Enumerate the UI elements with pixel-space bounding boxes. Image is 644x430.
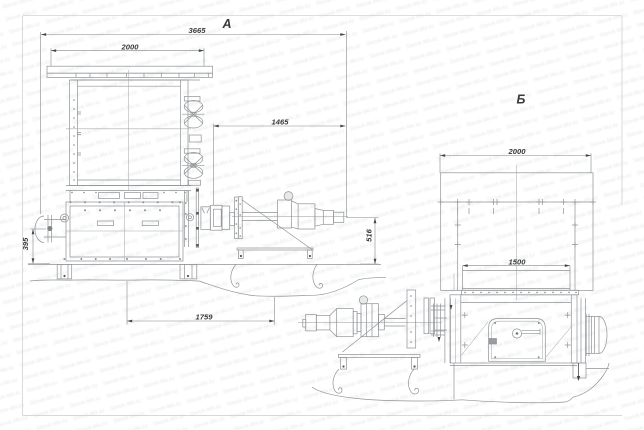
svg-text:2000: 2000 (121, 42, 140, 51)
svg-text:А: А (222, 17, 232, 31)
svg-text:1465: 1465 (272, 118, 290, 127)
svg-text:1759: 1759 (196, 313, 214, 322)
svg-text:3665: 3665 (189, 26, 207, 35)
svg-text:Б: Б (517, 93, 526, 107)
svg-text:2000: 2000 (508, 147, 527, 156)
svg-text:1500: 1500 (509, 257, 527, 266)
svg-text:395: 395 (21, 237, 30, 250)
svg-text:516: 516 (365, 228, 374, 241)
